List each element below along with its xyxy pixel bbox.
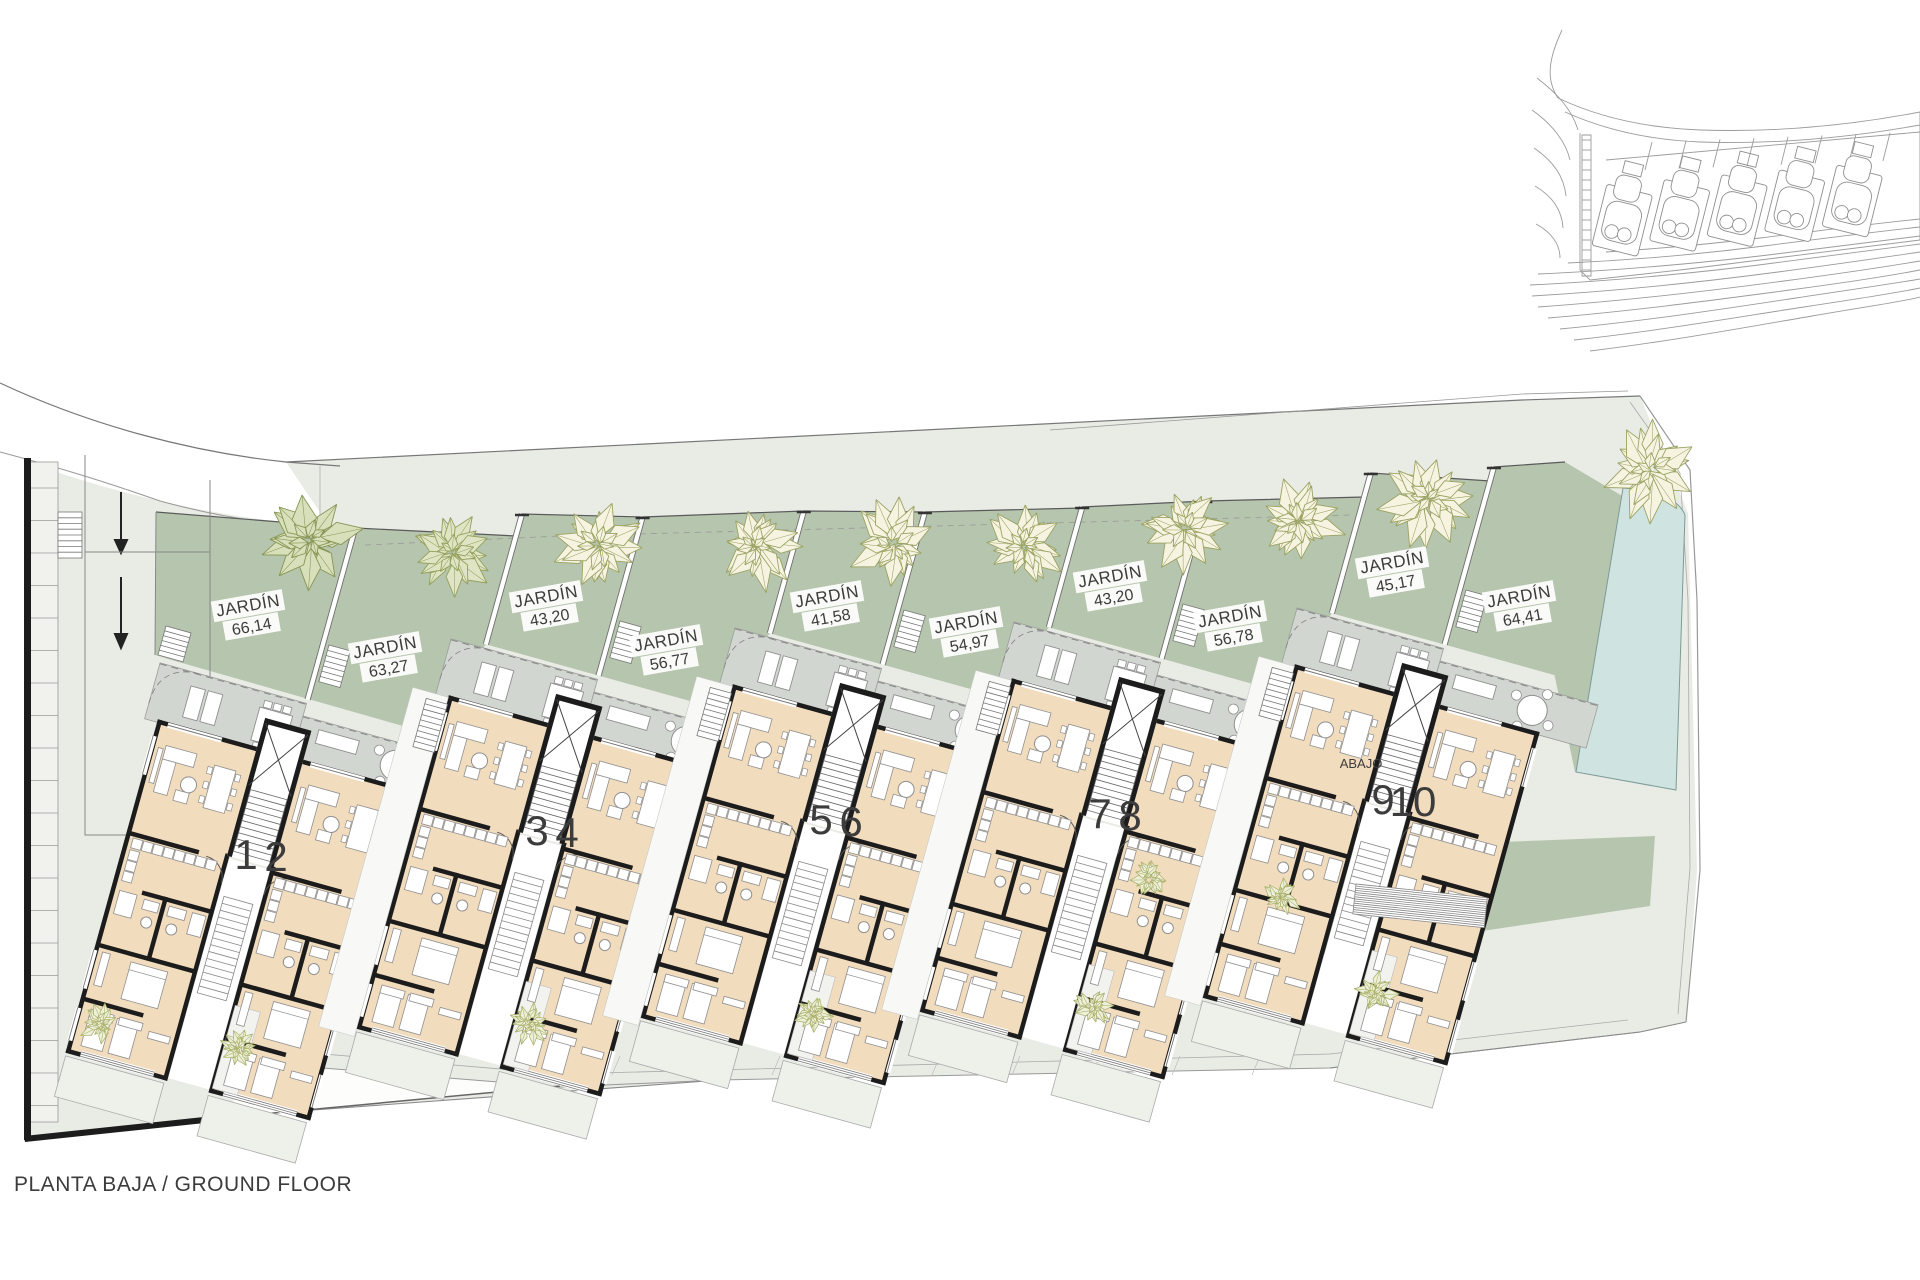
svg-text:8: 8: [1118, 792, 1141, 839]
svg-text:5: 5: [809, 796, 832, 843]
svg-text:ABAJO: ABAJO: [1340, 756, 1383, 771]
svg-text:6: 6: [839, 798, 862, 845]
svg-text:10: 10: [1390, 778, 1437, 825]
svg-text:1: 1: [234, 831, 257, 878]
svg-text:2: 2: [264, 833, 287, 880]
svg-text:3: 3: [525, 807, 548, 854]
svg-text:PLANTA BAJA / GROUND FLOOR: PLANTA BAJA / GROUND FLOOR: [14, 1173, 352, 1196]
svg-text:4: 4: [555, 809, 578, 856]
svg-text:7: 7: [1088, 790, 1111, 837]
